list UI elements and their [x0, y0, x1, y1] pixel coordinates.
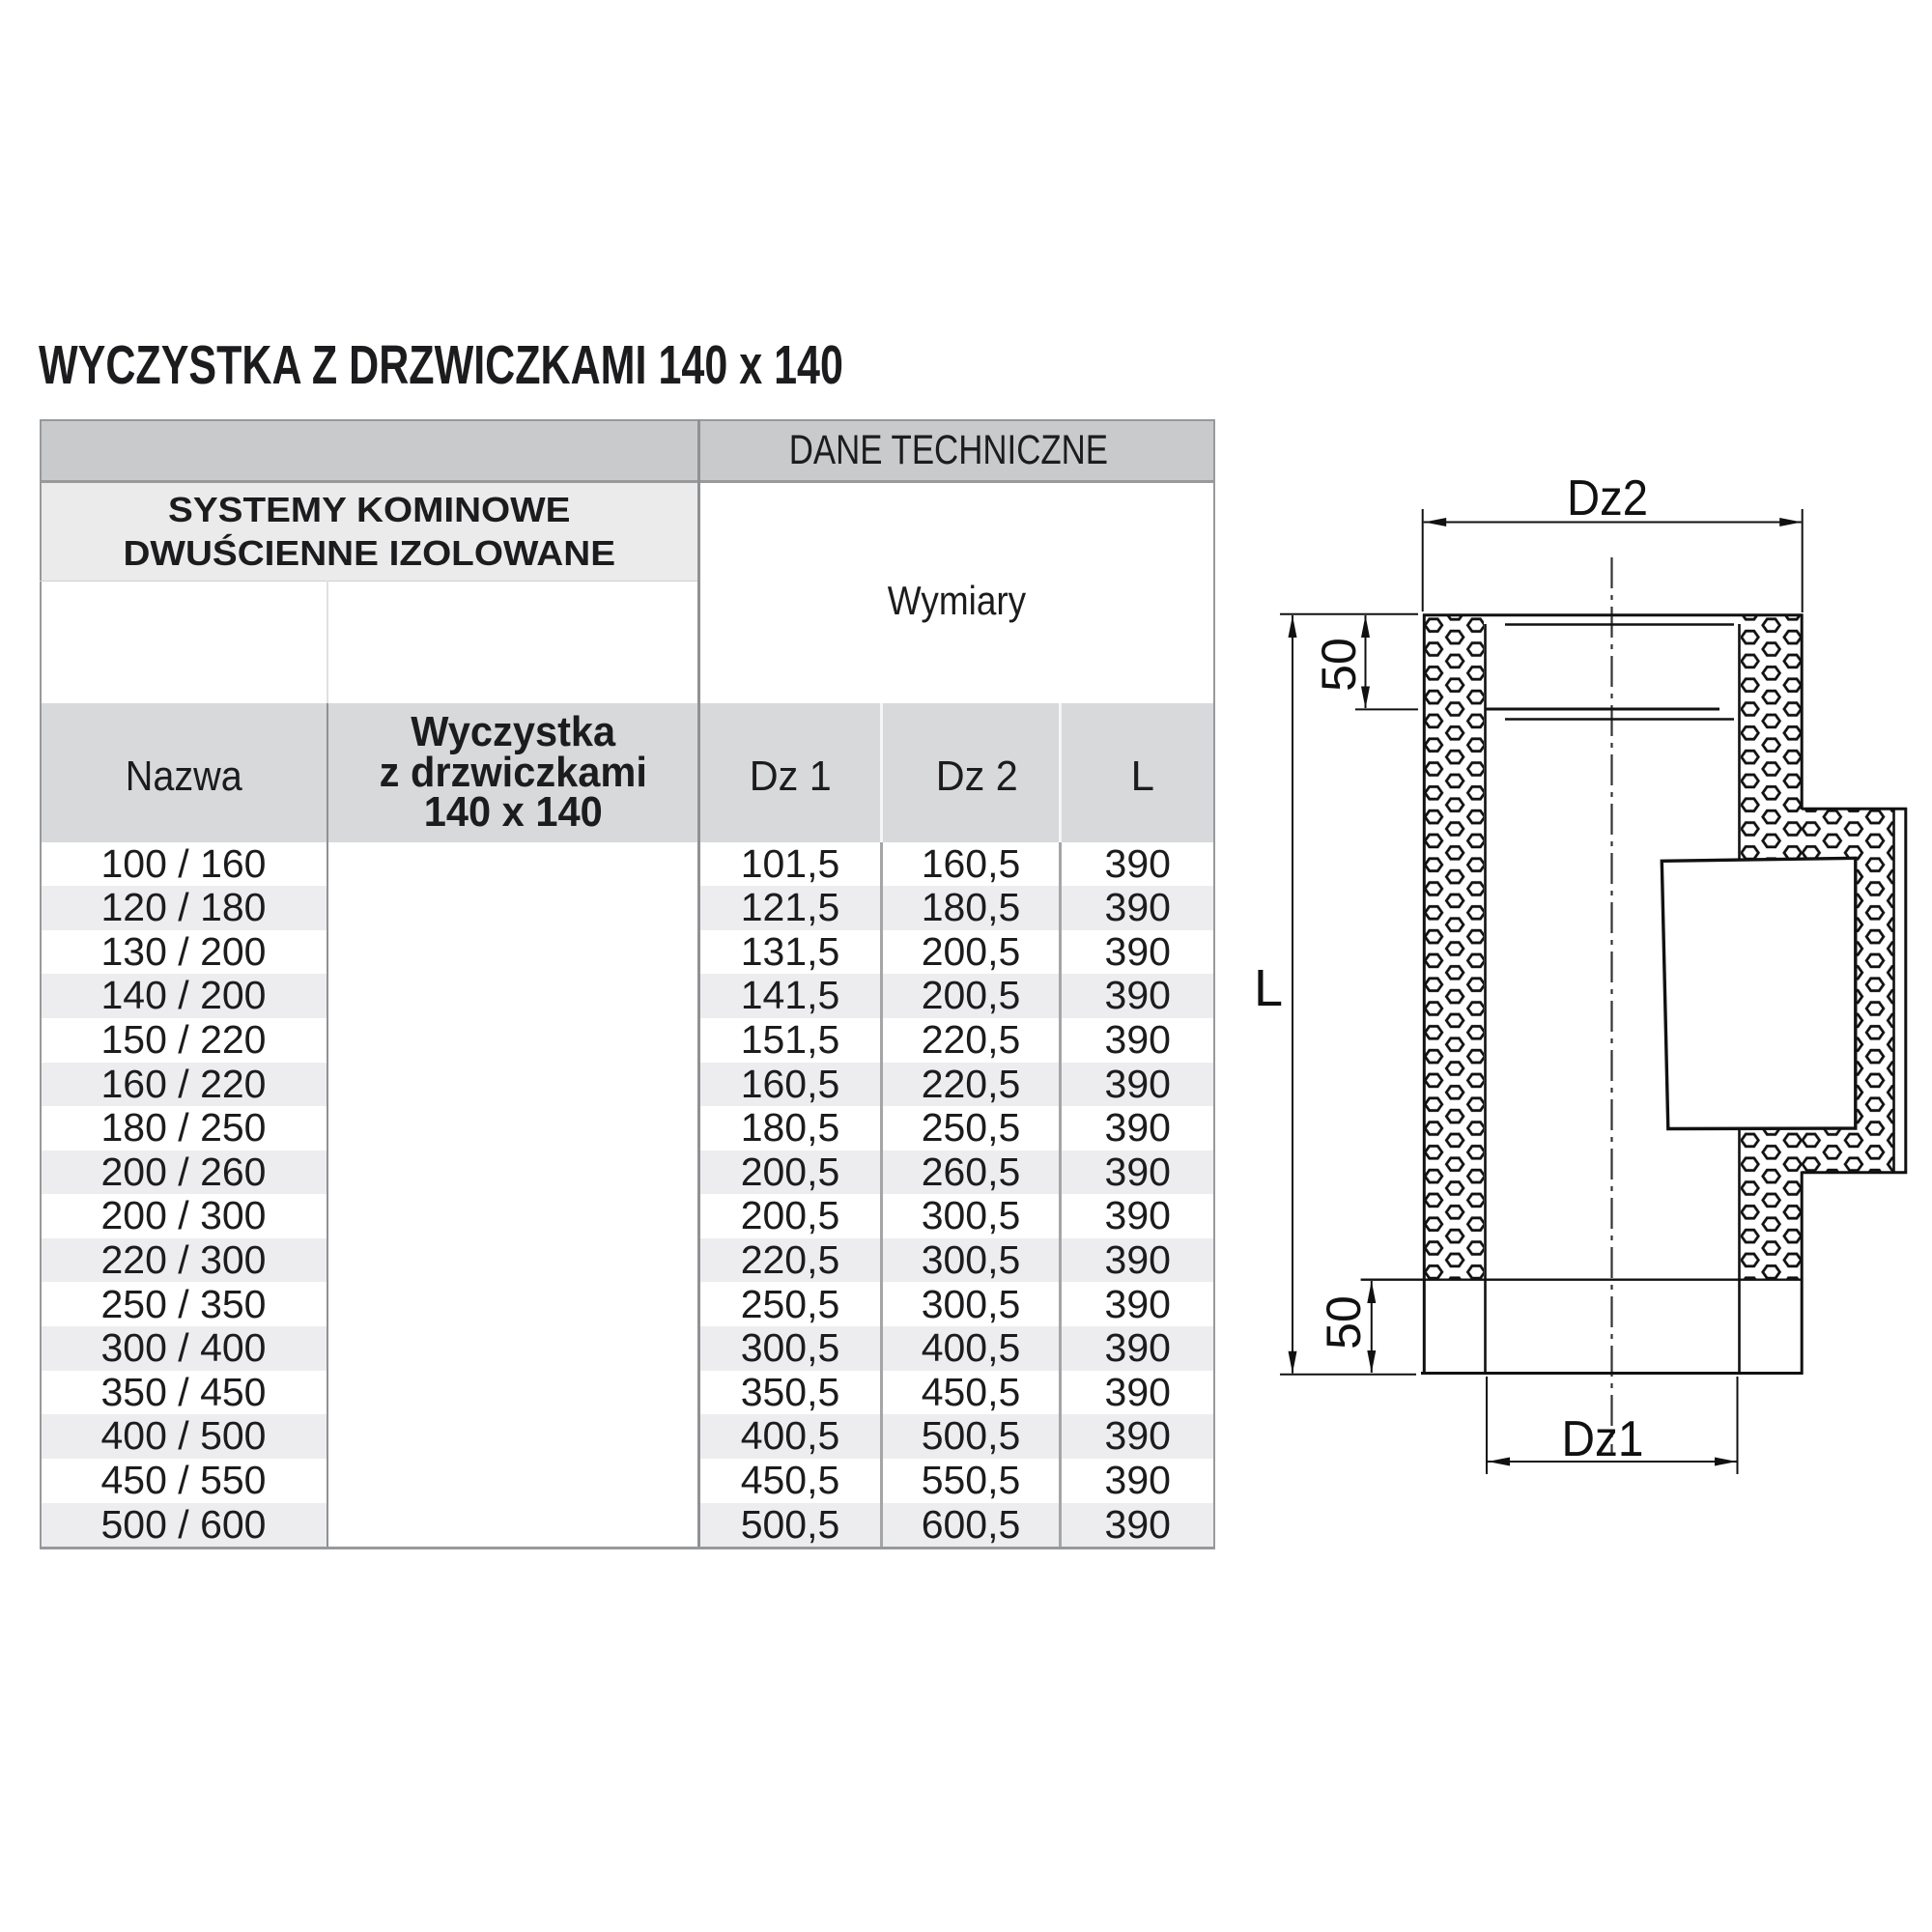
svg-text:Dz2: Dz2: [1567, 470, 1648, 526]
svg-text:Dz1: Dz1: [1562, 1411, 1644, 1467]
svg-text:50: 50: [1312, 638, 1366, 692]
svg-text:L: L: [1254, 959, 1283, 1017]
svg-text:50: 50: [1317, 1295, 1371, 1350]
